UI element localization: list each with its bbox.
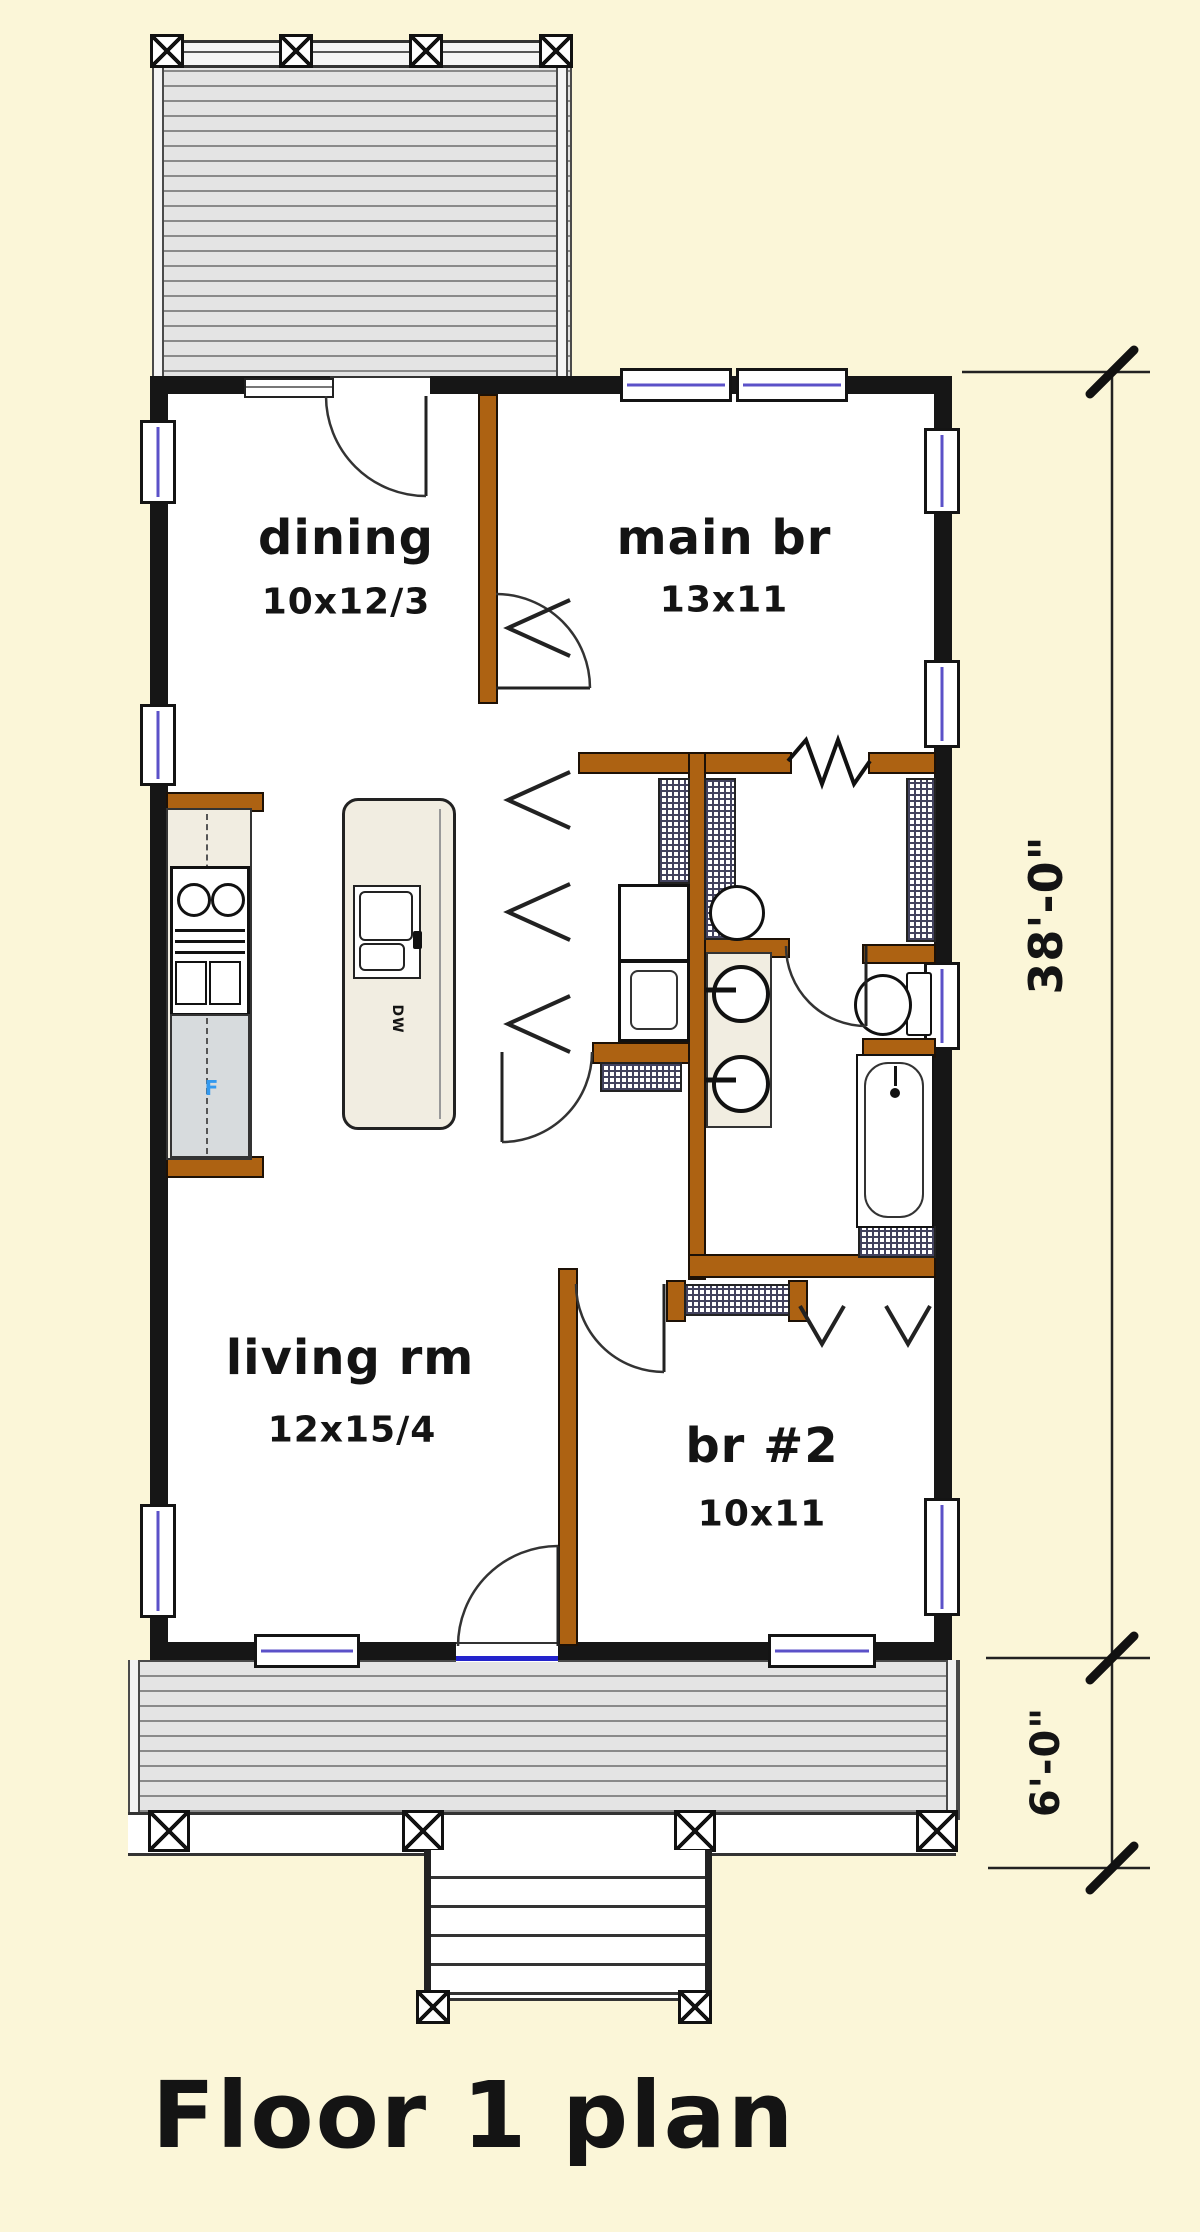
- tub-faucet-stem: [894, 1066, 897, 1086]
- washer: [618, 884, 690, 962]
- porch-post: [148, 1810, 190, 1852]
- sink-bowl: [359, 943, 405, 971]
- interior-wall: [862, 944, 936, 964]
- closet-wall-hatch: [658, 778, 690, 884]
- front-porch-left-rail: [128, 1660, 140, 1812]
- rear-deck: [152, 40, 572, 382]
- closet-wall-hatch: [684, 1284, 790, 1316]
- entry-steps: [424, 1850, 712, 2001]
- oven: [175, 961, 207, 1005]
- bathtub: [856, 1054, 934, 1228]
- porch-post: [916, 1810, 958, 1852]
- closet-wall-cap: [666, 1280, 686, 1322]
- vanity-sink: [712, 1055, 770, 1113]
- burner: [177, 883, 211, 917]
- rear-deck-right-rail: [556, 66, 568, 376]
- plan-title: Floor 1 plan: [152, 2062, 795, 2169]
- fridge-label: F: [205, 1076, 220, 1100]
- dimension-tick: [1090, 350, 1134, 394]
- deck-post: [539, 34, 573, 68]
- room-size-dining: 10x12/3: [262, 582, 431, 623]
- threshold-accent: [456, 1656, 558, 1661]
- island-inner-line: [439, 809, 441, 1119]
- dimension-tick: [1090, 1636, 1134, 1680]
- window: [254, 1634, 360, 1668]
- window: [140, 704, 176, 786]
- interior-wall: [558, 1268, 578, 1646]
- water-heater: [709, 885, 765, 941]
- window: [140, 1504, 176, 1618]
- burner: [211, 883, 245, 917]
- interior-wall: [592, 1042, 690, 1064]
- vanity-sink: [712, 965, 770, 1023]
- step-post: [678, 1990, 712, 2024]
- dimension-tick: [1090, 1846, 1134, 1890]
- range-grill: [175, 921, 245, 955]
- deck-post: [150, 34, 184, 68]
- dryer: [618, 960, 690, 1042]
- dimension-label-porch-depth: 6'-0": [1023, 1707, 1069, 1817]
- room-label-dining: dining: [258, 510, 434, 566]
- deck-post: [279, 34, 313, 68]
- front-door-threshold: [456, 1642, 558, 1662]
- window: [924, 428, 960, 514]
- sink-faucet: [413, 931, 422, 949]
- oven: [209, 961, 241, 1005]
- window: [768, 1634, 876, 1668]
- window: [924, 1498, 960, 1616]
- interior-wall: [868, 752, 936, 774]
- deck-post: [409, 34, 443, 68]
- window: [140, 420, 176, 504]
- rear-deck-top-rail: [152, 40, 568, 68]
- refrigerator: F: [170, 1014, 250, 1158]
- dishwasher-label: DW: [389, 1004, 405, 1033]
- rear-sidelight: [244, 378, 334, 398]
- interior-wall: [478, 394, 498, 704]
- range: [170, 866, 250, 1016]
- room-label-main-br: main br: [617, 510, 832, 566]
- room-size-living-rm: 12x15/4: [268, 1410, 437, 1451]
- interior-wall: [578, 752, 792, 774]
- sink-bowl: [359, 891, 413, 941]
- window: [924, 660, 960, 748]
- island-sink: [353, 885, 421, 979]
- kitchen-island: DW: [342, 798, 456, 1130]
- step-post: [416, 1990, 450, 2024]
- dryer-drum: [630, 970, 678, 1030]
- porch-post: [674, 1810, 716, 1852]
- window: [736, 368, 848, 402]
- dimension-label-house-depth: 38'-0": [1019, 835, 1073, 994]
- rear-door-opening: [330, 376, 430, 398]
- room-size-main-br: 13x11: [660, 580, 788, 621]
- tub-faucet: [890, 1088, 900, 1098]
- room-label-living-rm: living rm: [226, 1330, 475, 1386]
- rear-deck-left-rail: [152, 66, 164, 376]
- window: [620, 368, 732, 402]
- room-size-br2: 10x11: [698, 1494, 826, 1535]
- porch-post: [402, 1810, 444, 1852]
- front-porch: [128, 1660, 960, 1820]
- toilet-bowl: [854, 974, 912, 1036]
- closet-wall-cap: [788, 1280, 808, 1322]
- room-label-br2: br #2: [685, 1418, 838, 1474]
- front-porch-right-rail: [946, 1660, 958, 1812]
- closet-wall-hatch: [906, 778, 936, 942]
- closet-wall-hatch: [600, 1062, 682, 1092]
- floor-plan: F DW dining 10x12/3 main br 13x11 living…: [0, 0, 1200, 2232]
- closet-wall-hatch: [858, 1226, 936, 1258]
